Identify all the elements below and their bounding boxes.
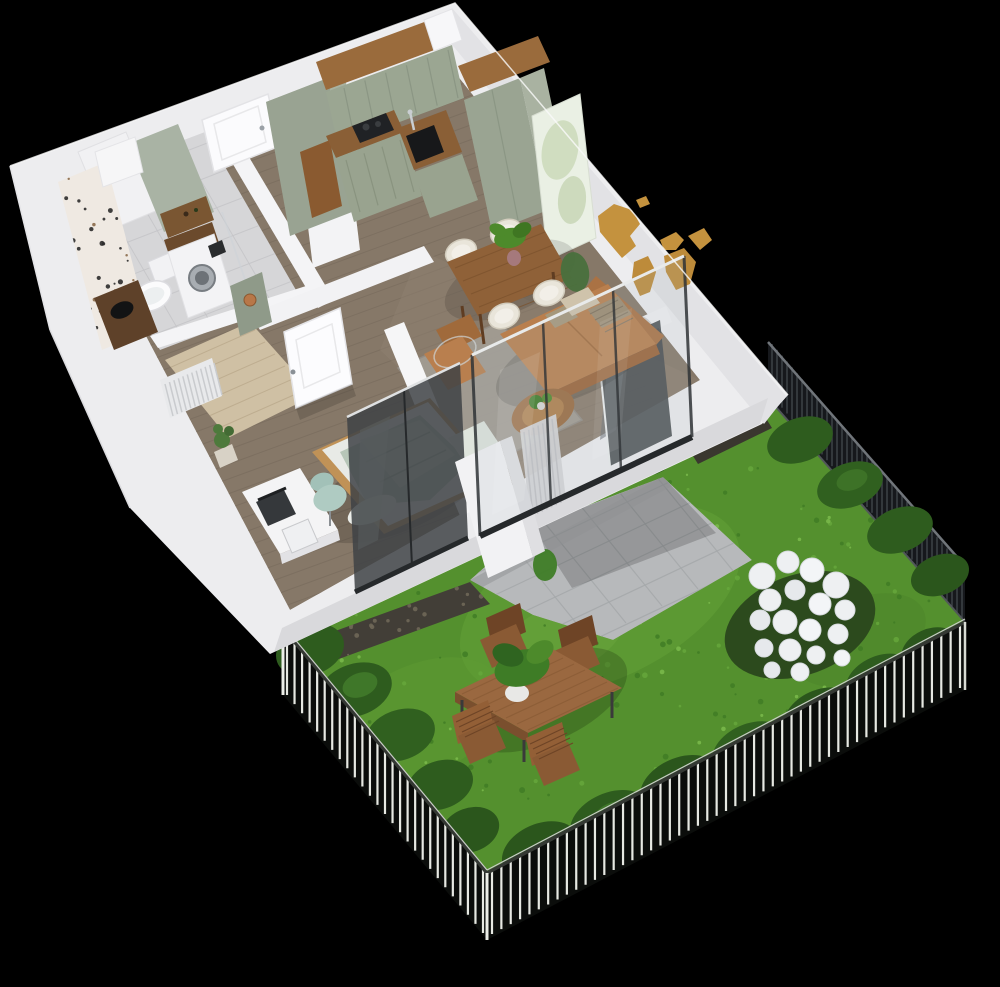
washer-door-glass [195, 271, 209, 285]
cooktop-burner [375, 121, 381, 127]
bedroom-door-knob [291, 370, 296, 375]
kitchen-faucet-head [408, 110, 413, 115]
hydrangea-bloom [823, 572, 849, 598]
hydrangea-bloom [755, 639, 773, 657]
hydrangea-bloom [800, 558, 824, 582]
cooktop-burner [363, 124, 370, 131]
hydrangea-bloom [759, 589, 781, 611]
floorplan-stage: 3D isometric apartment floor plan with g… [0, 0, 1000, 987]
hydrangea-bloom [799, 619, 821, 641]
hydrangea-bloom [807, 646, 825, 664]
worldmap-asia [688, 228, 712, 250]
floorplan-render [0, 0, 1000, 987]
hall-shelf-ball [244, 294, 256, 306]
table-plant-vase [507, 250, 521, 266]
hydrangea-bloom [791, 663, 809, 681]
hydrangea-bloom [809, 593, 831, 615]
worldmap-europe [660, 232, 684, 250]
shelf-bottle [194, 208, 198, 212]
hydrangea-bloom [777, 551, 799, 573]
cactus-plant [213, 424, 223, 434]
hydrangea-bloom [834, 650, 850, 666]
hydrangea-bloom [828, 624, 848, 644]
hydrangea-bloom [773, 610, 797, 634]
cactus-plant [224, 426, 234, 436]
entry-door-knob [260, 126, 265, 131]
hydrangea-bloom [764, 662, 780, 678]
hydrangea-bloom [749, 563, 775, 589]
hydrangea-bloom [750, 610, 770, 630]
hydrangea-bloom [779, 639, 801, 661]
hydrangea-bloom [835, 600, 855, 620]
hydrangea-bloom [785, 580, 805, 600]
shelf-bottle [184, 212, 189, 217]
worldmap-greenland [636, 196, 650, 208]
